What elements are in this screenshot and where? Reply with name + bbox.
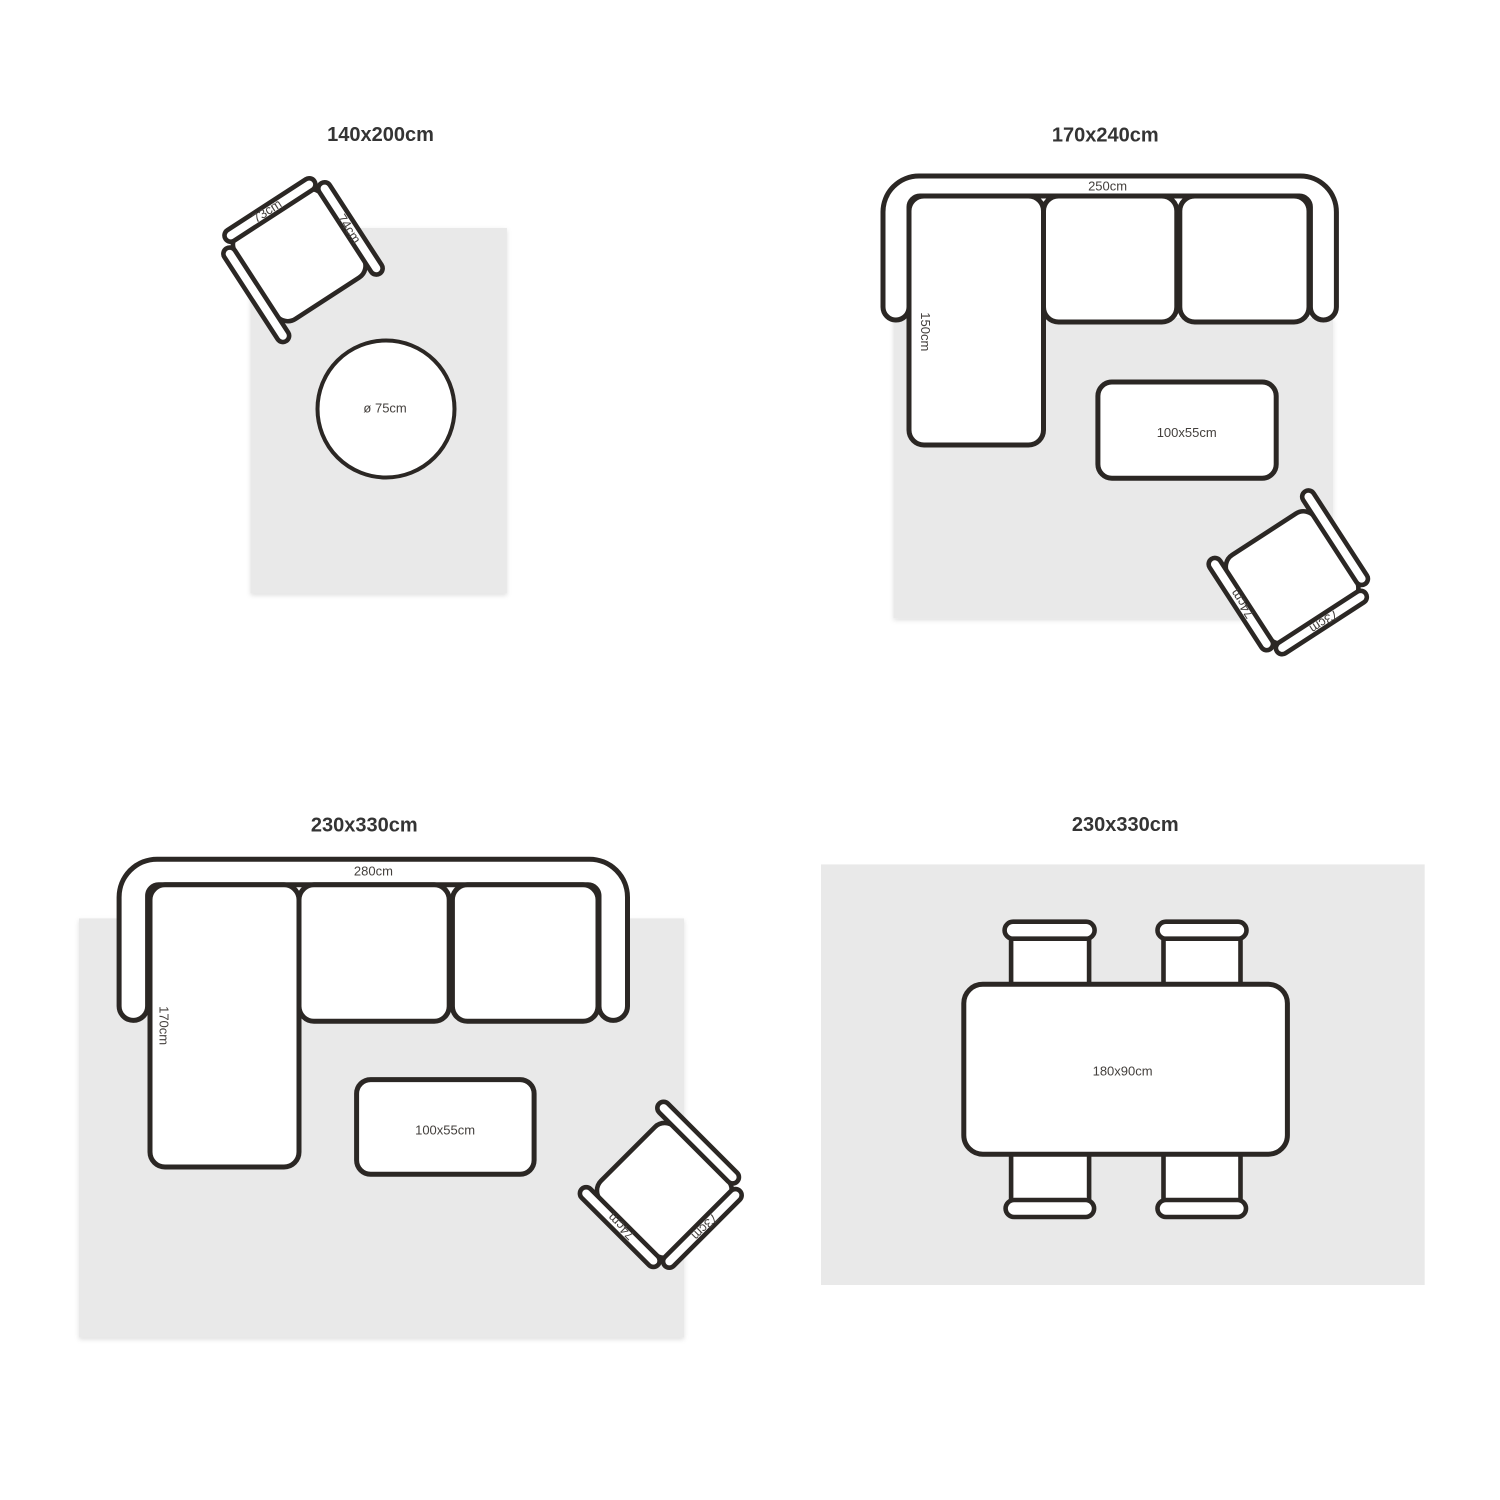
svg-text:180x90cm: 180x90cm	[1093, 1063, 1153, 1078]
svg-text:ø 75cm: ø 75cm	[363, 401, 406, 416]
svg-text:150cm: 150cm	[918, 312, 933, 351]
svg-text:140x200cm: 140x200cm	[327, 124, 434, 146]
svg-text:170cm: 170cm	[157, 1006, 172, 1045]
svg-text:170x240cm: 170x240cm	[1052, 125, 1159, 147]
svg-text:230x330cm: 230x330cm	[311, 815, 418, 837]
svg-text:100x55cm: 100x55cm	[415, 1123, 475, 1138]
svg-text:280cm: 280cm	[354, 864, 393, 879]
svg-text:100x55cm: 100x55cm	[1157, 425, 1217, 440]
svg-text:250cm: 250cm	[1088, 178, 1127, 193]
svg-text:230x330cm: 230x330cm	[1072, 814, 1179, 836]
